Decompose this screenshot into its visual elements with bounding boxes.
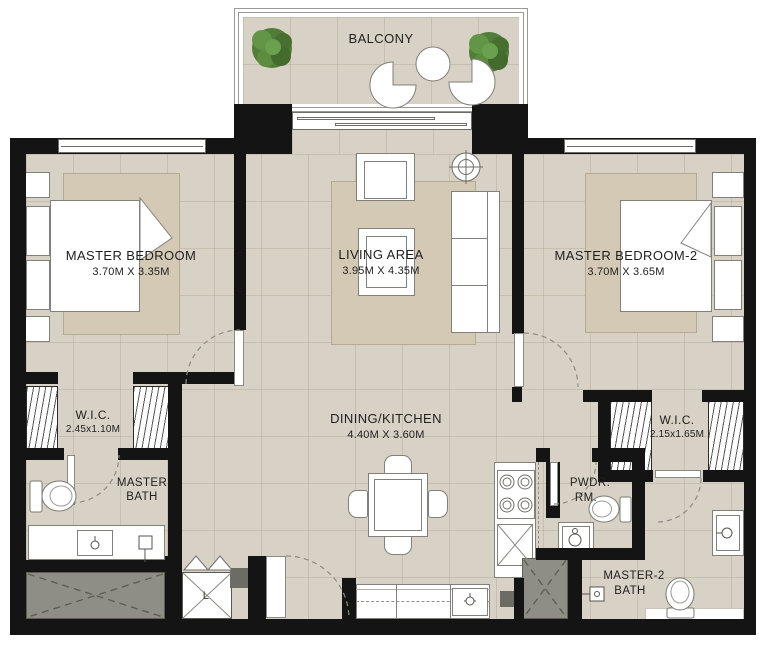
room-label-master-bath-1: MASTER	[117, 477, 167, 490]
wall-bedroom2-bottom-b	[702, 390, 744, 402]
wall-wic1-bath-a	[10, 448, 64, 460]
sofa-cushion-1	[451, 191, 488, 239]
room-dims-dining-kitchen: 4.40M X 3.60M	[347, 429, 424, 442]
bed1-pillow-1	[26, 206, 50, 256]
bedroom2-door-leaf	[514, 333, 524, 387]
bed1-nightstand-top	[24, 172, 50, 198]
room-label-dining-kitchen: DINING/KITCHEN	[330, 412, 442, 427]
room-label-master-bath-2: BATH	[126, 491, 157, 504]
wall-bedroom1-bottom-b	[133, 372, 236, 384]
room-dims-living-area: 3.95M X 4.35M	[342, 265, 419, 278]
wall-wic1-right	[168, 384, 182, 572]
wall-bedroom2-living	[512, 154, 524, 334]
bed2-nightstand-top	[712, 172, 744, 198]
room-dims-wic-2: 2.15x1.65M	[650, 429, 704, 441]
bed1-nightstand-bottom	[24, 316, 50, 342]
bed2-pillow-1	[714, 206, 742, 256]
room-label-wic-1: W.I.C.	[75, 409, 110, 423]
wall-bedroom1-bottom-a	[10, 372, 58, 384]
bath1-door-leaf	[67, 455, 75, 505]
floor-plan: BALCONY MASTER BEDROOM 3.70M X 3.35M LIV…	[0, 0, 768, 645]
room-label-master-2-bath-1: MASTER-2	[603, 570, 664, 583]
stove	[497, 470, 535, 519]
wall-bedroom2-bottom-a	[583, 390, 652, 402]
wall-bedroom1-living	[234, 154, 246, 330]
duct-box-1	[230, 568, 250, 588]
wall-bottom	[10, 619, 756, 635]
laundry-label: L	[203, 590, 210, 603]
room-dims-master-bedroom-2: 3.70M X 3.65M	[587, 266, 664, 279]
dining-chair-top	[384, 455, 412, 475]
sofa-cushion-3	[451, 285, 488, 333]
balcony-sliding-door	[292, 112, 472, 130]
shaft-left	[26, 572, 165, 619]
armchair-seat	[364, 161, 407, 199]
wic1-closet-left	[26, 386, 58, 450]
room-label-master-2-bath-2: BATH	[614, 585, 645, 598]
wall-kitchen-bottom-left	[342, 578, 356, 619]
room-label-wic-2: W.I.C.	[659, 414, 694, 428]
shaft-center	[522, 558, 568, 619]
dining-chair-right	[428, 490, 448, 518]
bath1-vanity-sink	[77, 530, 113, 556]
room-label-master-bedroom-2: MASTER BEDROOM-2	[555, 249, 698, 264]
wall-bath1-bottom	[10, 560, 182, 572]
pwdr-door-leaf	[550, 462, 558, 506]
dining-chair-bottom	[384, 535, 412, 555]
dining-chair-left	[348, 490, 368, 518]
sliding-door-rail-2	[335, 123, 467, 126]
dining-table-top	[374, 479, 422, 531]
room-label-master-bedroom: MASTER BEDROOM	[66, 249, 197, 264]
wall-laundry-left	[165, 556, 182, 619]
wall-entry-left	[248, 556, 266, 619]
wic2-closet-right	[708, 398, 744, 478]
bed2-nightstand-bottom	[712, 316, 744, 342]
bath2-vanity-sink	[716, 515, 740, 551]
room-label-pwdr-2: RM.	[575, 492, 597, 505]
bed1-pillow-2	[26, 260, 50, 310]
entry-door-leaf	[266, 556, 286, 618]
room-label-living-area: LIVING AREA	[338, 248, 423, 263]
sofa-cushion-2	[451, 238, 488, 286]
bedroom1-door-leaf	[234, 330, 244, 386]
wall-pwdr-bottom	[536, 548, 645, 560]
wall-balcony-stub-left	[234, 104, 292, 154]
bedroom1-window	[58, 139, 206, 153]
room-dims-wic-1: 2.45x1.10M	[66, 424, 120, 436]
balcony-doorway-floor	[292, 128, 472, 154]
kitchen-sink-bottom	[452, 588, 488, 616]
room-dims-master-bedroom: 3.70M X 3.35M	[92, 266, 169, 279]
wall-balcony-stub-right	[472, 104, 528, 154]
bath2-door-leaf	[655, 470, 701, 478]
wall-shaft-center-left	[514, 578, 524, 619]
sliding-door-rail-1	[297, 117, 435, 120]
room-label-pwdr-1: PWDR.	[570, 477, 610, 490]
wall-wic2-left	[598, 390, 610, 482]
wall-pwdr-top-a	[536, 448, 550, 462]
bedroom2-window	[564, 139, 696, 153]
bed2-pillow-2	[714, 260, 742, 310]
wall-bedroom2-stub	[512, 387, 522, 402]
wall-wic2-bottom-b	[703, 470, 744, 482]
room-label-balcony: BALCONY	[349, 32, 414, 47]
wall-pwdr-right	[632, 448, 645, 560]
wall-right	[744, 138, 756, 635]
